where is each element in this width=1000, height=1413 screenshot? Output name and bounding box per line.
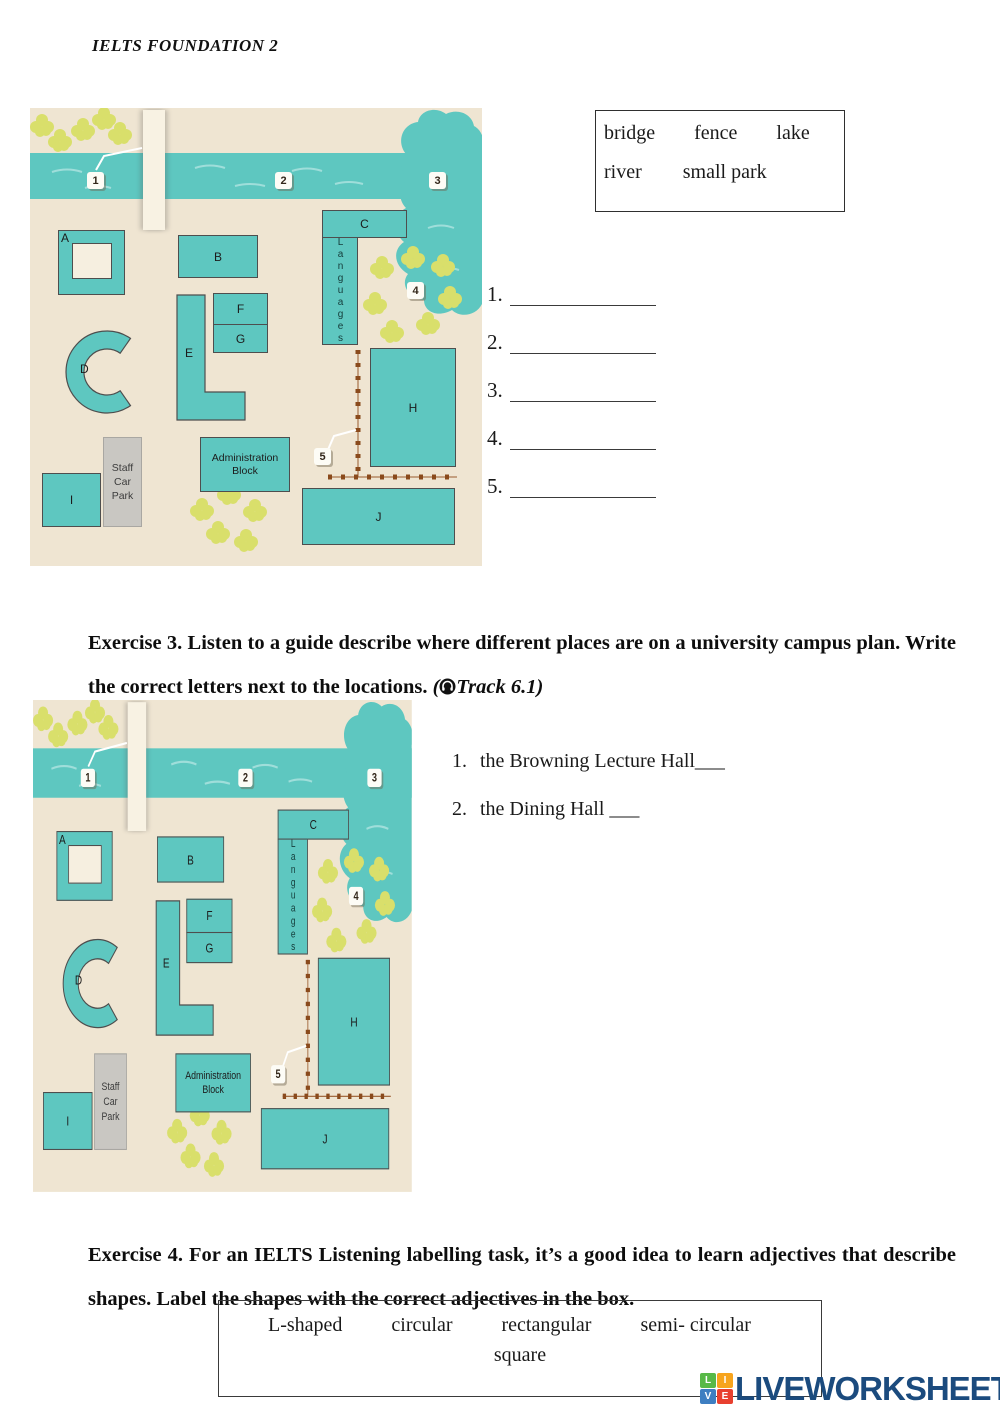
word-small-park: small park [683,161,767,184]
answer-blank-1: 1. [487,270,656,318]
building-f-label: F [237,302,244,316]
languages-building: Languages [278,839,308,955]
staff-label-line3: Park [101,1109,119,1124]
building-d-shape [63,940,117,1028]
staff-label-line3: Park [112,489,134,503]
building-f: F [213,293,268,325]
building-i: I [42,473,101,527]
building-b-label: B [214,250,222,264]
building-h: H [370,348,456,467]
word-fence: fence [694,122,737,145]
building-b: B [157,836,224,882]
building-c: C [278,810,349,840]
building-h-label: H [350,1014,357,1029]
languages-label: Languages [289,839,297,955]
languages-building: Languages [322,237,358,345]
campus-map-1: A B C Languages D E F G H Administration… [30,108,482,566]
blank-number: 5. [487,474,503,499]
building-g: G [186,932,232,963]
word-l-shaped: L-shaped [268,1314,342,1337]
question-number: 2. [452,798,467,821]
map-marker-1: 1 [87,172,104,189]
building-f: F [186,899,232,933]
building-f-label: F [206,908,212,923]
answer-line-3[interactable] [510,379,656,402]
flowers-top-left [30,108,132,152]
building-a-label: A [59,832,66,847]
logo-tile-l: L [700,1373,716,1388]
question-text[interactable]: the Browning Lecture Hall___ [480,750,725,773]
map-marker-3: 3 [429,172,446,189]
staff-label-line1: Staff [112,461,133,475]
word-bank-box: bridge fence lake river small park [595,110,845,212]
administration-label-line1: Administration [212,452,279,465]
map-marker-2: 2 [275,172,292,189]
blank-number: 4. [487,426,503,451]
answer-blank-list: 1. 2. 3. 4. 5. [487,270,656,510]
administration-label-line1: Administration [185,1069,241,1083]
liveworksheets-logo-text: LIVEWORKSHEETS [735,1372,1000,1405]
word-semi-circular: semi- circular [640,1314,751,1337]
languages-label: Languages [335,237,345,345]
worksheet-page: { "header": { "title": "IELTS FOUNDATION… [0,0,1000,1413]
administration-label-line2: Block [202,1083,224,1097]
question-1: 1. the Browning Lecture Hall___ [452,737,725,785]
building-c-label: C [360,217,369,231]
blank-number: 1. [487,282,503,307]
word-river: river [604,161,642,184]
map-marker-5: 5 [271,1065,285,1083]
answer-line-1[interactable] [510,283,656,306]
logo-tile-v: V [700,1389,716,1404]
building-i: I [43,1092,92,1150]
answer-blank-4: 4. [487,414,656,462]
answer-blank-2: 2. [487,318,656,366]
flowers-top-left [33,700,118,747]
building-b: B [178,235,258,278]
blank-number: 3. [487,378,503,403]
staff-car-park: Staff Car Park [103,437,142,527]
answer-line-5[interactable] [510,475,656,498]
building-j-label: J [323,1131,328,1146]
building-e-label: E [185,346,193,360]
campus-map: A B C Languages D E F G H Administration… [33,700,412,1192]
shape-row-1: L-shaped circular rectangular semi- circ… [219,1301,821,1337]
liveworksheets-logo[interactable]: L I V E LIVEWORKSHEETS [700,1372,1000,1405]
liveworksheets-logo-icon: L I V E [700,1373,733,1404]
question-list: 1. the Browning Lecture Hall___ 2. the D… [452,737,725,833]
administration-block: Administration Block [200,437,290,492]
building-e-label: E [163,956,170,971]
building-a-courtyard [68,845,102,884]
staff-label-line2: Car [103,1094,117,1109]
answer-blank-5: 5. [487,462,656,510]
building-j-label: J [376,510,382,524]
flowers-bottom [167,1102,232,1177]
map-marker-1: 1 [81,769,95,787]
building-c: C [322,210,407,238]
building-d-label: D [80,362,89,376]
flowers-bottom [190,482,267,552]
track-paren: ( [433,676,440,698]
administration-block: Administration Block [175,1053,250,1112]
logo-tile-i: I [717,1373,733,1388]
answer-blank-3: 3. [487,366,656,414]
shape-row-2: square [219,1344,821,1367]
word-bank-row-1: bridge fence lake [596,122,844,145]
answer-line-4[interactable] [510,427,656,450]
word-bank-row-2: river small park [596,161,844,184]
building-b-label: B [187,852,194,867]
page-title: IELTS FOUNDATION 2 [92,36,278,56]
building-g-label: G [205,940,213,955]
building-h: H [318,958,390,1086]
map-marker-2: 2 [238,769,252,787]
question-2: 2. the Dining Hall ___ [452,785,725,833]
map-marker-3: 3 [367,769,381,787]
word-square: square [494,1344,546,1366]
building-g-label: G [236,332,245,346]
administration-label-line2: Block [232,465,258,478]
map-marker-4: 4 [407,282,424,299]
answer-line-2[interactable] [510,331,656,354]
building-i-label: I [66,1113,69,1128]
building-j: J [261,1108,389,1169]
staff-car-park: Staff Car Park [94,1053,127,1150]
building-j: J [302,488,455,545]
exercise-3-instructions: Exercise 3. Listen to a guide describe w… [88,621,956,709]
map-marker-4: 4 [349,887,363,905]
word-lake: lake [776,122,809,145]
word-circular: circular [391,1314,452,1337]
word-rectangular: rectangular [502,1314,592,1337]
building-a-courtyard [72,243,112,279]
blank-number: 2. [487,330,503,355]
campus-map-2: A B C Languages D E F G H Administration… [33,700,412,1192]
building-h-label: H [409,401,418,415]
staff-label-line2: Car [114,475,131,489]
campus-map: A B C Languages D E F G H Administration… [30,108,482,566]
building-i-label: I [70,493,73,507]
headphones-icon [439,678,456,695]
building-g: G [213,324,268,353]
building-d-shape [66,331,130,413]
word-bridge: bridge [604,122,655,145]
question-number: 1. [452,750,467,773]
staff-label-line1: Staff [102,1079,120,1094]
building-a-label: A [61,231,69,245]
logo-tile-e: E [717,1389,733,1404]
building-d-label: D [75,973,82,988]
building-c-label: C [310,817,317,832]
map-marker-5: 5 [314,448,331,465]
track-label: Track 6.1) [456,676,543,698]
question-text[interactable]: the Dining Hall ___ [480,798,639,821]
